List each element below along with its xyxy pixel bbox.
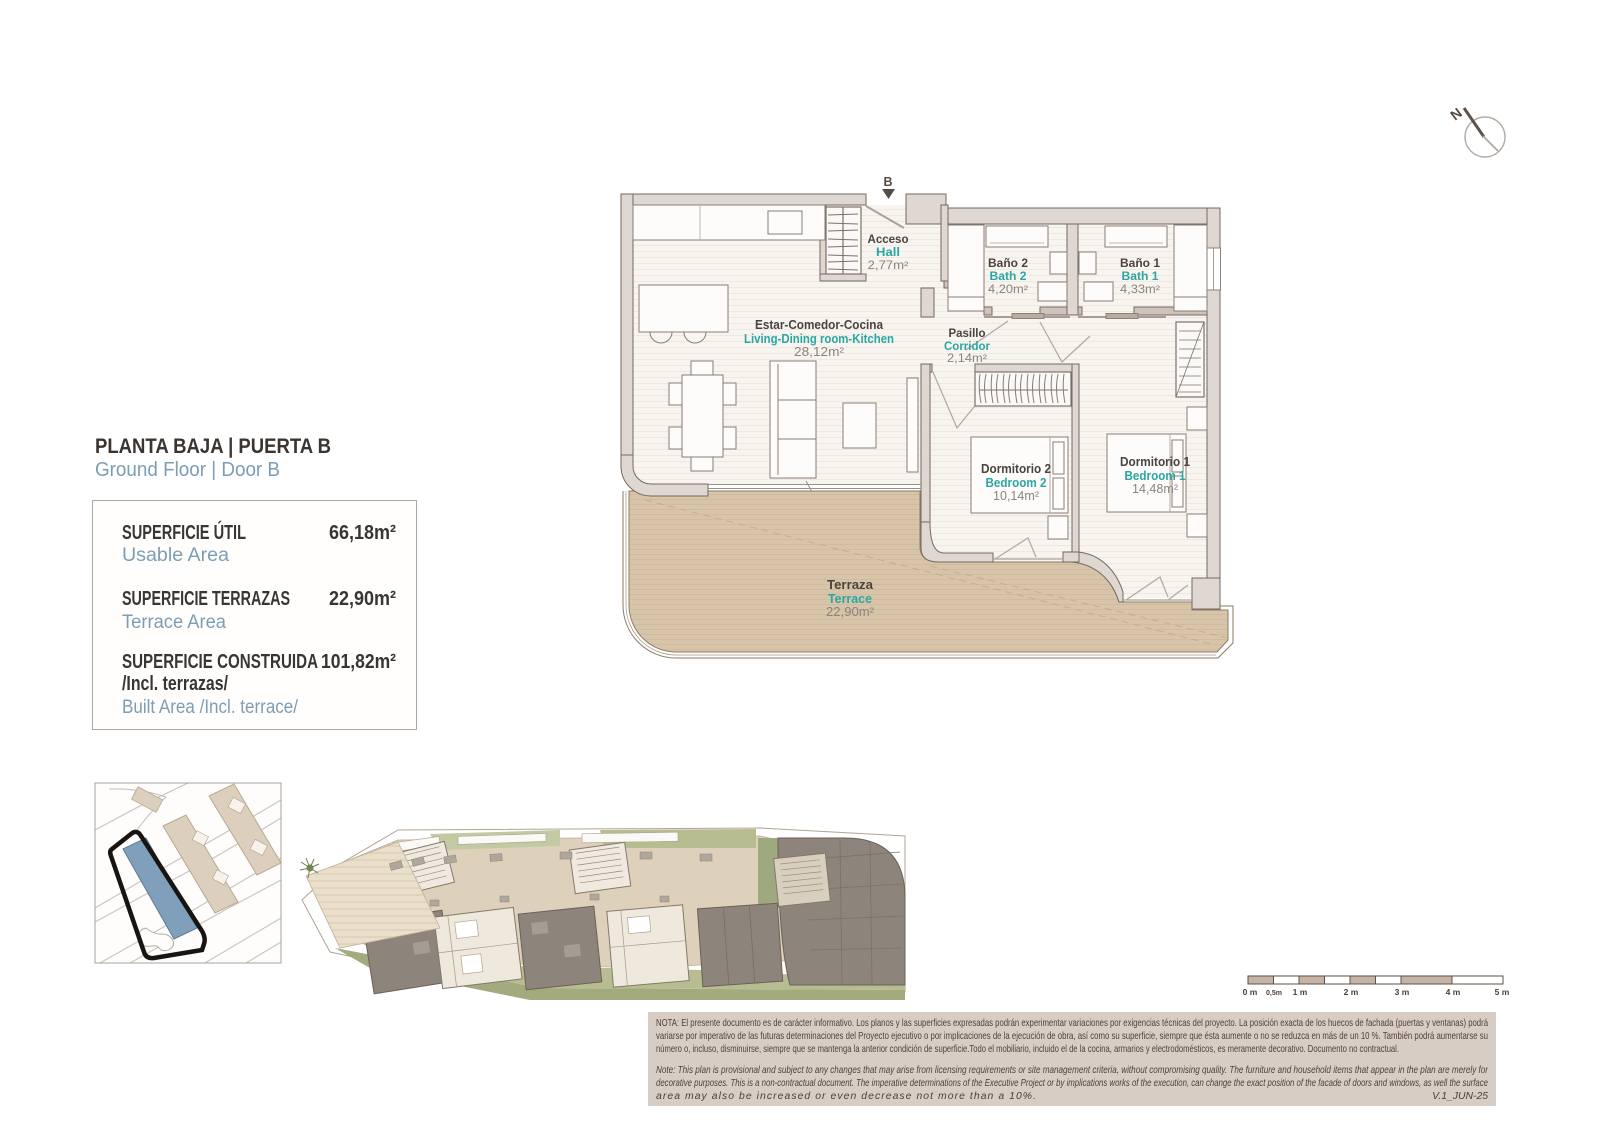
svg-text:B: B	[883, 175, 892, 189]
svg-text:2,14m²: 2,14m²	[947, 353, 987, 365]
svg-text:2 m: 2 m	[1344, 987, 1359, 997]
svg-text:Dormitorio 1: Dormitorio 1	[1120, 455, 1190, 469]
svg-text:Dormitorio 2: Dormitorio 2	[981, 462, 1051, 476]
svg-text:Bath 1: Bath 1	[1122, 271, 1160, 283]
svg-text:10,14m²: 10,14m²	[993, 489, 1039, 503]
svg-text:0 m: 0 m	[1243, 987, 1258, 997]
svg-text:101,82m²: 101,82m²	[321, 651, 396, 673]
svg-text:Acceso: Acceso	[868, 234, 909, 246]
svg-text:Built Area /Incl. terrace/: Built Area /Incl. terrace/	[122, 697, 299, 718]
svg-text:Baño 1: Baño 1	[1120, 258, 1161, 270]
svg-text:número o, incluso, disminuirse: número o, incluso, disminuirse, siempre …	[656, 1044, 1399, 1055]
svg-text:Hall: Hall	[876, 247, 900, 259]
svg-text:Bath 2: Bath 2	[990, 271, 1027, 283]
svg-text:Terrace: Terrace	[828, 592, 872, 606]
svg-text:Corridor: Corridor	[944, 341, 991, 353]
svg-text:4,33m²: 4,33m²	[1120, 284, 1160, 296]
svg-text:22,90m²: 22,90m²	[329, 588, 396, 610]
svg-text:Note: This plan is provisional: Note: This plan is provisional and subje…	[656, 1065, 1488, 1076]
svg-text:2,77m²: 2,77m²	[868, 260, 909, 272]
svg-text:Bedroom 2: Bedroom 2	[986, 476, 1047, 490]
svg-text:4,20m²: 4,20m²	[988, 284, 1028, 296]
svg-text:66,18m²: 66,18m²	[329, 522, 396, 544]
svg-text:SUPERFICIE TERRAZAS: SUPERFICIE TERRAZAS	[122, 588, 290, 610]
svg-text:NOTA: El presente documento e: NOTA: El presente documento es de caráct…	[656, 1018, 1488, 1029]
svg-text:N: N	[1447, 105, 1465, 124]
svg-text:Usable Area: Usable Area	[122, 545, 229, 566]
svg-text:Estar-Comedor-Cocina: Estar-Comedor-Cocina	[755, 317, 884, 332]
svg-text:Baño 2: Baño 2	[988, 258, 1028, 270]
svg-text:PLANTA BAJA | PUERTA B: PLANTA BAJA | PUERTA B	[95, 434, 331, 458]
svg-text:28,12m²: 28,12m²	[794, 344, 845, 359]
svg-text:5 m: 5 m	[1495, 987, 1510, 997]
svg-text:4 m: 4 m	[1446, 987, 1461, 997]
svg-text:variarse por imperativo de las: variarse por imperativo de las futuras d…	[656, 1031, 1488, 1042]
svg-text:Ground Floor | Door B: Ground Floor | Door B	[95, 458, 280, 481]
svg-text:14,48m²: 14,48m²	[1132, 482, 1178, 496]
svg-text:SUPERFICIE CONSTRUIDA: SUPERFICIE CONSTRUIDA	[122, 651, 318, 673]
svg-text:1 m: 1 m	[1293, 987, 1308, 997]
svg-text:/Incl. terrazas/: /Incl. terrazas/	[122, 673, 228, 695]
svg-text:Bedroom 1: Bedroom 1	[1125, 469, 1186, 483]
svg-text:22,90m²: 22,90m²	[826, 605, 874, 619]
svg-text:SUPERFICIE ÚTIL: SUPERFICIE ÚTIL	[122, 520, 246, 544]
svg-text:Terraza: Terraza	[827, 578, 874, 592]
svg-text:Pasillo: Pasillo	[949, 328, 986, 340]
svg-text:area may also be increased or: area may also be increased or even decre…	[656, 1091, 1036, 1102]
svg-text:Terrace Area: Terrace Area	[122, 612, 226, 633]
svg-text:decorative purposes. This is a: decorative purposes. This is a non-contr…	[656, 1078, 1488, 1089]
svg-text:V.1_JUN-25: V.1_JUN-25	[1432, 1091, 1488, 1102]
svg-text:0,5m: 0,5m	[1266, 990, 1282, 997]
svg-text:3 m: 3 m	[1395, 987, 1410, 997]
